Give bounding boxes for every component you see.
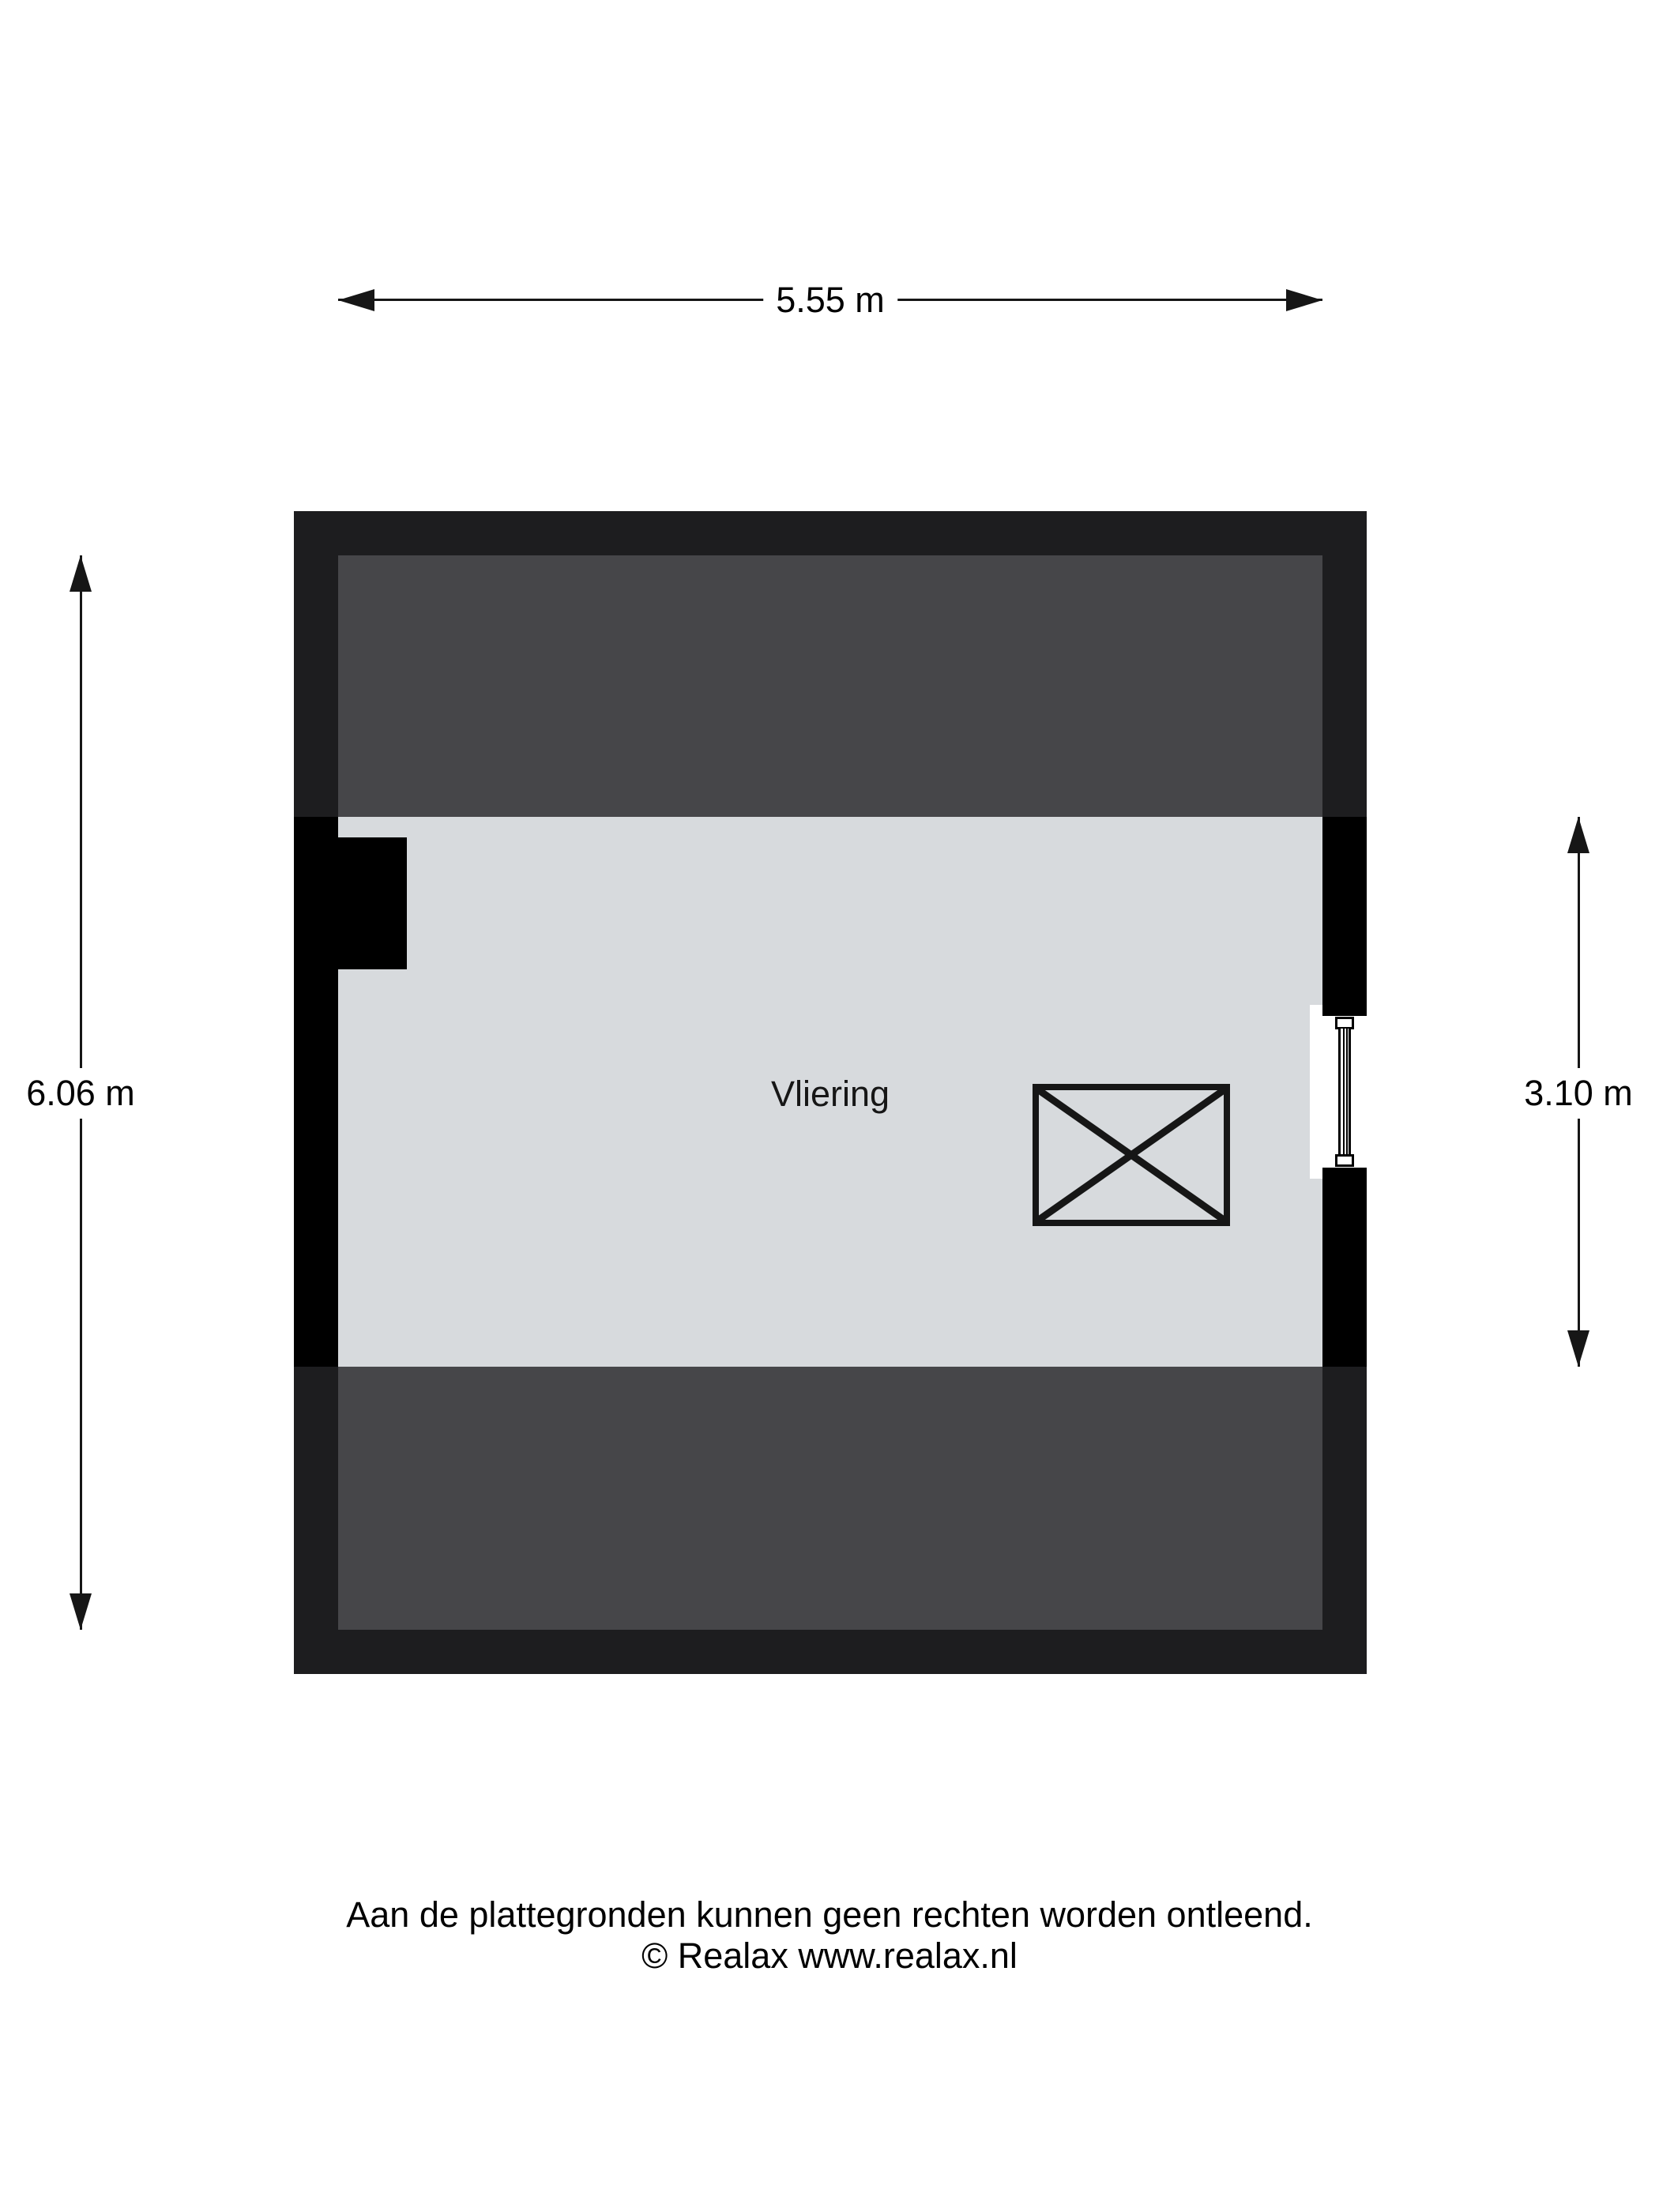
roof-hatch-symbol <box>1033 1084 1230 1226</box>
room-label: Vliering <box>771 1074 890 1115</box>
arrowhead-down-icon <box>1567 1330 1589 1367</box>
arrowhead-left-icon <box>338 289 374 311</box>
arrowhead-up-icon <box>70 555 92 592</box>
disclaimer-text: Aan de plattegronden kunnen geen rechten… <box>0 1894 1659 1935</box>
low-headroom-area-top <box>338 555 1322 817</box>
arrowhead-down-icon <box>70 1593 92 1630</box>
window-glazing <box>1338 1029 1351 1155</box>
copyright-text: © Realax www.realax.nl <box>0 1935 1659 1977</box>
arrowhead-right-icon <box>1286 289 1322 311</box>
dimension-label-height: 6.06 m <box>13 1068 148 1119</box>
low-headroom-area-bottom <box>338 1367 1322 1630</box>
wall-projection-block <box>337 837 407 969</box>
glazing-line <box>1346 1029 1348 1155</box>
crossed-box-icon <box>1039 1090 1224 1220</box>
arrowhead-up-icon <box>1567 817 1589 853</box>
window-frame-bottom <box>1335 1154 1354 1167</box>
window-reveal <box>1310 1005 1322 1179</box>
dimension-label-width: 5.55 m <box>763 275 897 325</box>
window-frame-top <box>1335 1017 1354 1029</box>
dimension-label-floor-height: 3.10 m <box>1511 1068 1646 1119</box>
glazing-line <box>1343 1029 1345 1155</box>
page: 5.55 m 6.06 m 3.10 m Vliering Aan de pla… <box>0 0 1659 2212</box>
footer: Aan de plattegronden kunnen geen rechten… <box>0 1894 1659 1977</box>
